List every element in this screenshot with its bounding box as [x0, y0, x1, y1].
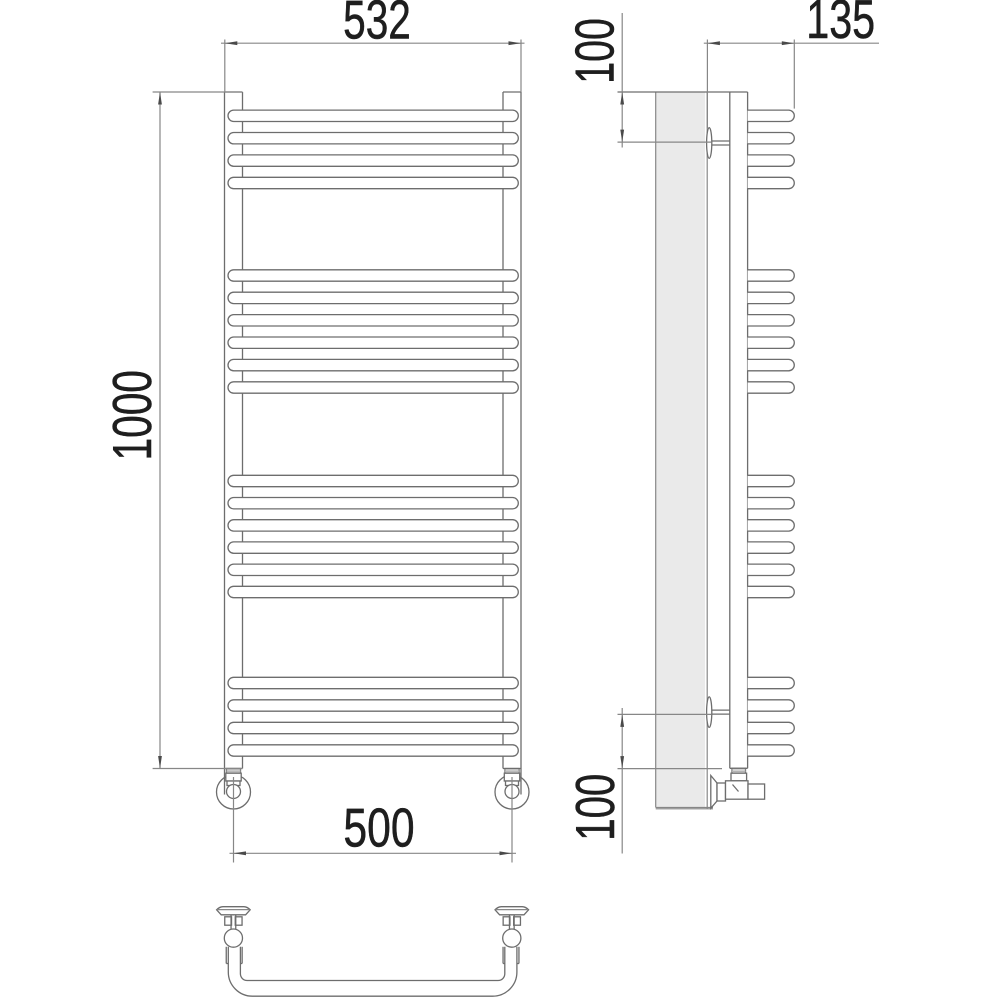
svg-text:100: 100: [564, 774, 626, 841]
svg-text:100: 100: [564, 18, 626, 84]
svg-text:500: 500: [343, 796, 414, 858]
svg-text:532: 532: [343, 0, 411, 50]
svg-text:1000: 1000: [101, 370, 163, 460]
svg-text:135: 135: [806, 0, 875, 50]
